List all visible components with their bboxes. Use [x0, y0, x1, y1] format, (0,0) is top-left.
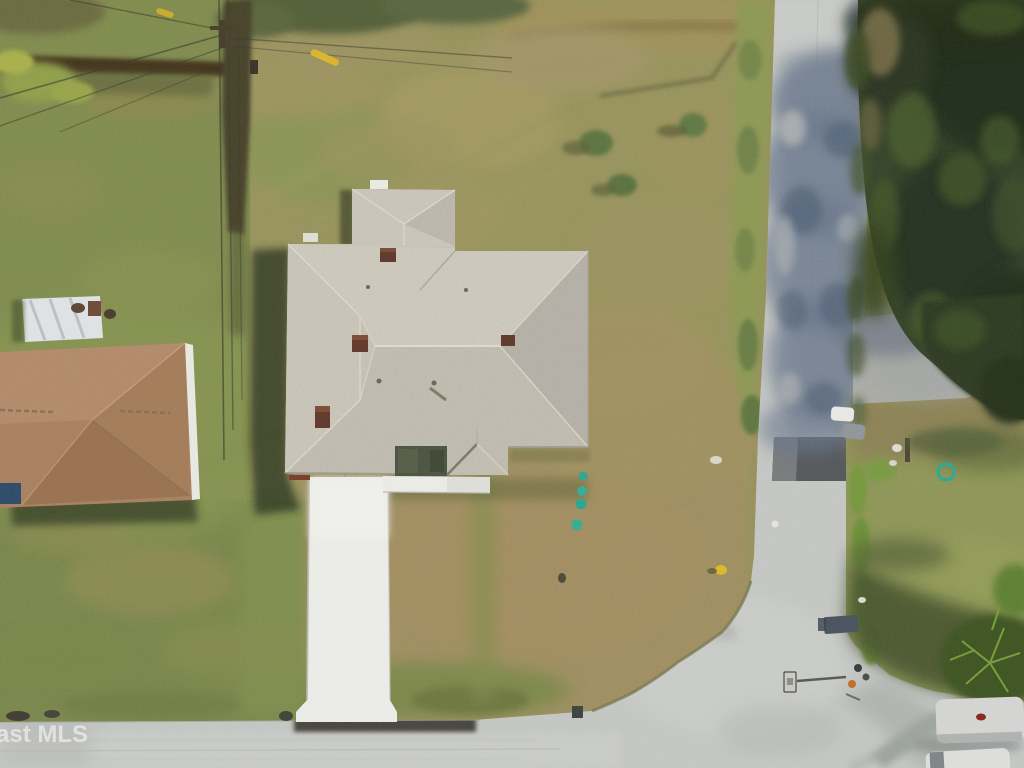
svg-text:ast MLS: ast MLS — [0, 721, 88, 748]
